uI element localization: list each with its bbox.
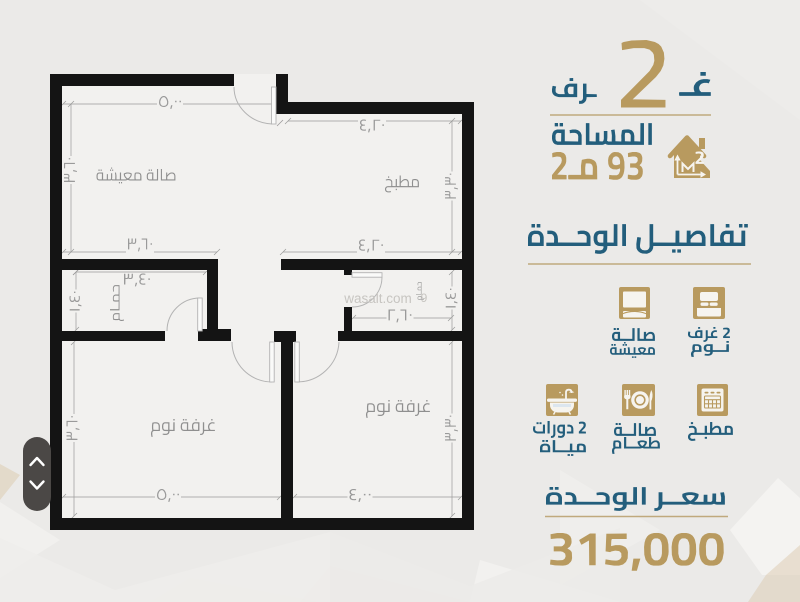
svg-text:9: 9 bbox=[421, 291, 428, 305]
svg-text:wasalt.com: wasalt.com bbox=[343, 291, 412, 306]
